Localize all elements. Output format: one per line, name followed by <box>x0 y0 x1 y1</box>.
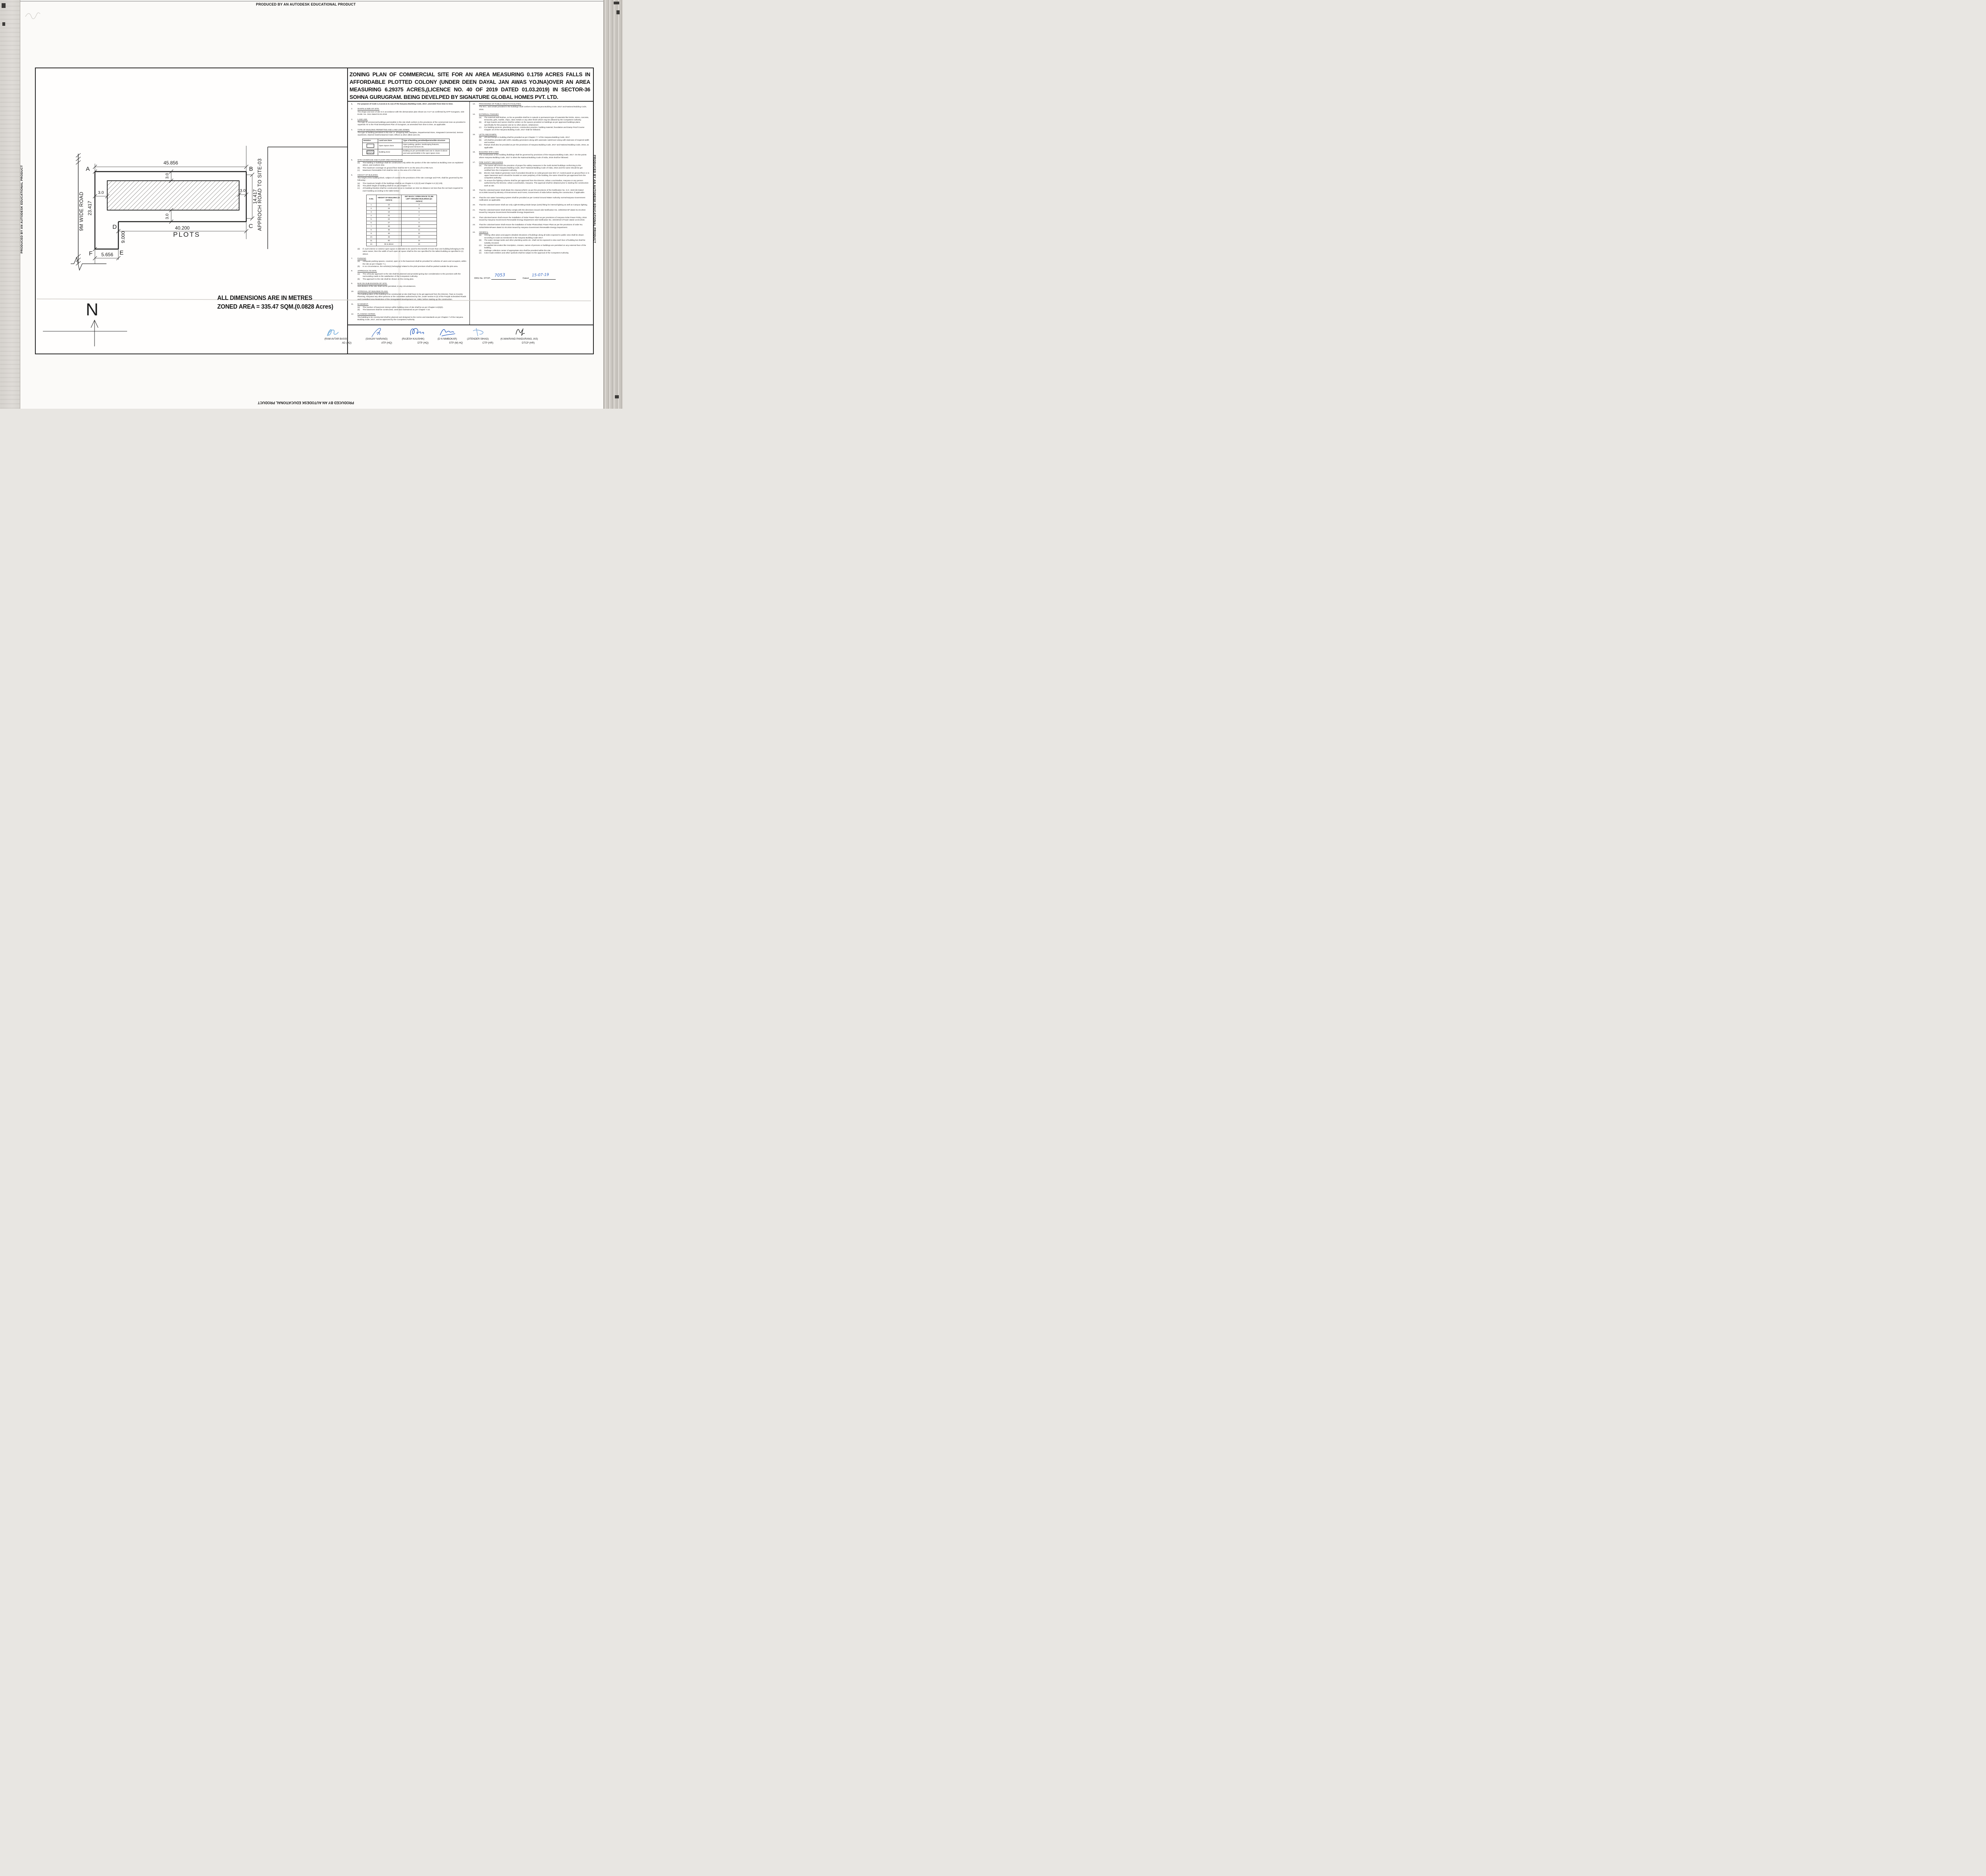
title-line: ZONING PLAN OF COMMERCIAL SITE FOR AN AR… <box>350 71 590 78</box>
table-cell: 14 <box>402 239 437 242</box>
subitem-text: No applied decoration like inscription, … <box>484 245 589 250</box>
note-content: HEIGHT OF BUILDING.The height of the bui… <box>357 174 467 256</box>
dimension-right: 14.417 <box>246 173 258 220</box>
table-cell: 27 <box>377 221 402 224</box>
subitem-key: (a) <box>357 162 363 167</box>
table-cell: 15 <box>377 207 402 211</box>
note-subitem: (b)The approach to the site shall be sho… <box>357 278 467 281</box>
height-table: S.No.HEIGHT OF BUILDING (in meters)SET B… <box>366 195 437 246</box>
title-line: MEASURING 6.29375 ACRES,(LICENCE NO. 40 … <box>350 86 590 93</box>
road-label-left: 9M WIDE ROAD <box>79 191 84 231</box>
note-content: BAR ON SUB-DIVISION OF SITE.Sub-division… <box>357 283 467 289</box>
note-content: That the coloniser/owner shall strictly … <box>479 209 589 215</box>
dimension-top-value: 45.856 <box>164 160 178 166</box>
signatory-name: (JITENDER SIHAG) <box>459 338 496 340</box>
table-cell: 24 <box>377 218 402 221</box>
note-item: 7.PARKING(a)Adequate parking spaces, cov… <box>351 258 467 269</box>
note-body: The type of building permitted in this s… <box>357 132 467 137</box>
dimension-de-value: 9.000 <box>120 231 126 243</box>
table-cell: 1. <box>367 203 377 207</box>
note-heading: HEIGHT OF BUILDING. <box>357 174 378 177</box>
drg-date-handwritten: 15-07-19 <box>531 272 549 277</box>
note-content: That the coloniser/owner shall use only … <box>479 204 589 207</box>
table-header: SET BACK / OPEN SPACE TO BE LEFT AROUND … <box>402 195 437 203</box>
produced-by-text-left: PRODUCED BY AN AUTODESK EDUCATIONAL PROD… <box>20 154 23 253</box>
plots-label: PLOTS <box>173 231 200 238</box>
table-cell: 8 <box>402 218 437 221</box>
dimensions-note: ALL DIMENSIONS ARE IN METRES ZONED AREA … <box>217 294 333 311</box>
subitem-text: The water storage tanks and other plumbi… <box>484 240 589 245</box>
subitem-key: (a) <box>357 261 363 266</box>
notation-swatch-cell <box>363 149 378 155</box>
note-subitem: (a)Among other plans and papers detailed… <box>479 234 589 240</box>
note-content: GENERAL(a)Among other plans and papers d… <box>479 232 589 255</box>
note-heading: SITE COVERAGE AND FLOOR AREA RATIO (FAR) <box>357 159 403 162</box>
table-row: Open Space ZoneOpen parking, garden, lan… <box>363 143 450 149</box>
note-item: 5.SITE COVERAGE AND FLOOR AREA RATIO (FA… <box>351 159 467 172</box>
subitem-key: (c) <box>479 144 484 149</box>
subitem-key: (b) <box>357 278 363 281</box>
note-body: That the coloniser/owner shall ensure th… <box>479 224 589 229</box>
drawing-sheet-frame: 45.856 A B C D E F 3.0 <box>35 68 594 354</box>
subitem-key: (e) <box>479 252 484 255</box>
zone-cell: Building Zone <box>378 149 402 155</box>
signature-block: (RAM AVTAR BASSI) AD (HQ) <box>317 327 355 344</box>
table-row: 2.155 <box>367 207 437 211</box>
signatory-designation: AD (HQ) <box>317 342 355 344</box>
note-number: 17. <box>473 162 479 187</box>
note-body: Sub-division of the site shall not be pe… <box>357 286 467 288</box>
table-row: 6.279 <box>367 221 437 224</box>
scan-speck <box>616 10 620 14</box>
note-number: 9. <box>351 283 357 289</box>
note-subitem: (d)If, such interior or exterior open sp… <box>357 248 467 256</box>
table-row: 11.5014 <box>367 239 437 242</box>
note-item: 10.APPROVAL OF BUILDING PLANS.The buildi… <box>351 291 467 302</box>
note-body: The height of the building block, subjec… <box>357 177 467 182</box>
corner-label-d: D <box>112 224 117 230</box>
note-item: 21.That the coloniser/owner shall strict… <box>473 209 589 215</box>
note-subitem: (c)All building block(s) shall be constr… <box>357 187 467 193</box>
notation-table: NotationLand use ZoneType of Building pe… <box>362 139 450 156</box>
table-cell: 13 <box>402 235 437 239</box>
note-body: That the rain water harvesting system sh… <box>479 197 589 202</box>
table-cell: 45 <box>377 235 402 239</box>
signatory-designation: CTP (HR) <box>459 342 496 344</box>
building-zone-hatch <box>107 181 239 210</box>
pencil-scribble <box>23 9 43 27</box>
signature-squiggle <box>503 327 535 338</box>
note-item: 14.EXTERNAL FINISHES(a)The external wall… <box>473 114 589 132</box>
note-item: 9.BAR ON SUB-DIVISION OF SITE.Sub-divisi… <box>351 283 467 289</box>
note-number: 22. <box>473 217 479 222</box>
note-number: 3. <box>351 119 357 127</box>
note-subitem: (b)Electric Sub Station/ generator room … <box>479 172 589 180</box>
scan-speck <box>2 22 5 26</box>
setback-bottom-value: 3.0 <box>165 214 170 220</box>
note-heading: TYPE OF BUILDING PERMITTED AND LAND USE … <box>357 129 410 131</box>
scan-edge-line <box>20 1 604 2</box>
note-content: BUILDING BYE-LAWSThe construction of the… <box>479 151 589 160</box>
table-row: Building ZoneBuilding as per permissible… <box>363 149 450 155</box>
note-number: 10. <box>351 291 357 302</box>
table-row: 7.3010 <box>367 224 437 228</box>
table-cell: 11. <box>367 239 377 242</box>
subitem-text: The approach to the site shall be shown … <box>363 278 467 281</box>
signature-block: (SANJAY NARANG) ATP (HQ) <box>358 327 395 344</box>
notes-column-right: 13.PROVISIONS OF PUBLIC HEALTH FACILITIE… <box>473 103 589 257</box>
table-row: 1.103 <box>367 203 437 207</box>
note-heading: LIFTS AND RAMPS. <box>479 134 497 136</box>
note-item: 15.LIFTS AND RAMPS.(a)Lift and Ramps in … <box>473 134 589 149</box>
subitem-key: (a) <box>479 117 484 122</box>
note-subitem: (e)Color trade emblem and other symbols … <box>479 252 589 255</box>
table-header: S.No. <box>367 195 377 203</box>
table-cell: 7. <box>367 224 377 228</box>
subitem-key: (b) <box>357 266 363 268</box>
scan-speck <box>614 2 619 4</box>
signature-squiggle <box>462 327 494 338</box>
note-body: The type of commercial buildings permiss… <box>357 122 467 127</box>
subitem-text: Color trade emblem and other symbols sha… <box>484 252 589 255</box>
signature-squiggle <box>431 327 463 338</box>
note-body: The building to be constructed shall be … <box>357 317 467 322</box>
table-cell: 11 <box>402 228 437 232</box>
subitem-text: Lift shall be provided with 100% standby… <box>484 139 589 145</box>
signature-squiggle <box>361 327 392 338</box>
panel-border-line <box>347 68 348 354</box>
table-cell: 9. <box>367 232 377 235</box>
note-subitem: (a)The external wall finishes, so far as… <box>479 117 589 122</box>
table-cell: 55 & above <box>377 242 402 246</box>
table-cell: 12. <box>367 242 377 246</box>
notation-swatch-cell <box>363 143 378 149</box>
drg-dated-label: Dated <box>523 277 529 280</box>
note-item: 13.PROVISIONS OF PUBLIC HEALTH FACILITIE… <box>473 103 589 112</box>
note-body: The building plans of the building to be… <box>357 294 467 301</box>
note-subitem: (a)The owner will ensure the provision o… <box>479 165 589 172</box>
drg-number-handwritten: 7053 <box>495 272 505 278</box>
note-number: 6. <box>351 174 357 256</box>
subitem-key: (c) <box>479 127 484 132</box>
signatory-name: (K.MAKRAND PANDURANG, IAS) <box>500 338 538 340</box>
signatory-name: (RAJESH KAUSHIK) <box>394 338 432 340</box>
table-cell: 6 <box>402 211 437 214</box>
note-content: That the rain water harvesting system sh… <box>479 197 589 203</box>
drg-label: DRG No. DTCP- <box>474 277 491 280</box>
drg-date-blank: 15-07-19 <box>529 276 556 280</box>
signature-block: (RAJESH KAUSHIK) DTP (HQ) <box>394 327 432 344</box>
table-cell: 3 <box>402 203 437 207</box>
signature-block: (K.MAKRAND PANDURANG, IAS) DTCP (HR) <box>500 327 538 344</box>
table-cell: 16 <box>402 242 437 246</box>
table-cell: 6. <box>367 221 377 224</box>
signatory-designation: DTP (HQ) <box>394 342 432 344</box>
note-item: 16.BUILDING BYE-LAWSThe construction of … <box>473 151 589 160</box>
note-content: APPROACH TO SITE.(a)The vehicular approa… <box>357 270 467 281</box>
subitem-text: The basement shall be constructed, used … <box>363 309 467 311</box>
table-header: Land use Zone <box>378 139 402 143</box>
table-cell: 40 <box>377 232 402 235</box>
note-subitem: (b)All sign boards and names shall be wr… <box>479 122 589 127</box>
note-number: 15. <box>473 134 479 149</box>
subitem-key: (c) <box>479 180 484 187</box>
note-subitem: (c)No applied decoration like inscriptio… <box>479 245 589 250</box>
produced-by-text-top: PRODUCED BY AN AUTODESK EDUCATIONAL PROD… <box>238 2 373 6</box>
note-item: 23.That the coloniser/owner shall ensure… <box>473 224 589 230</box>
note-content: That the coloniser/owner shall obtain th… <box>479 189 589 195</box>
table-row: 12.55 & above16 <box>367 242 437 246</box>
note-number: 16. <box>473 151 479 160</box>
table-header: HEIGHT OF BUILDING (in meters) <box>377 195 402 203</box>
note-number: 1. <box>351 103 357 106</box>
note-body: That the coloniser/owner shall obtain th… <box>479 189 589 195</box>
note-content: PARKING(a)Adequate parking spaces, cover… <box>357 258 467 269</box>
subitem-text: The building or buildings shall be const… <box>363 162 467 167</box>
note-number: 21. <box>473 209 479 215</box>
note-number: 11. <box>351 303 357 311</box>
note-item: 4.TYPE OF BUILDING PERMITTED AND LAND US… <box>351 129 467 157</box>
table-header: Type of Building permitted/permissible s… <box>402 139 450 143</box>
note-item: 8.APPROACH TO SITE.(a)The vehicular appr… <box>351 270 467 281</box>
note-heading: BUILDING BYE-LAWS <box>479 151 499 154</box>
setback-left-value: 3.0 <box>98 190 104 195</box>
subitem-text: Among other plans and papers detailed el… <box>484 234 589 240</box>
subitem-text: In no circumstance, the vehicle(s) belon… <box>363 266 467 268</box>
table-cell: 2. <box>367 207 377 211</box>
signatory-designation: DTCP (HR) <box>500 342 538 344</box>
subitem-text: For building services, plumbing services… <box>484 127 589 132</box>
table-cell: 4. <box>367 214 377 218</box>
note-content: SITE COVERAGE AND FLOOR AREA RATIO (FAR)… <box>357 159 467 172</box>
note-subitem: (c)Ramps shall also be provided as per t… <box>479 144 589 149</box>
note-subitem: (c)For building services, plumbing servi… <box>479 127 589 132</box>
note-item: 17.FIRE SAFETY MEASURES(a)The owner will… <box>473 162 589 187</box>
note-heading: BAR ON SUB-DIVISION OF SITE. <box>357 283 387 285</box>
subitem-key: (a) <box>479 234 484 240</box>
table-row: 9.4012 <box>367 232 437 235</box>
subitem-key: (b) <box>357 309 363 311</box>
table-cell: 5. <box>367 218 377 221</box>
table-row: 8.3511 <box>367 228 437 232</box>
note-content: SHAPE & SIZE OF SITE.The shape and size … <box>357 108 467 116</box>
subitem-key: (b) <box>479 240 484 245</box>
note-body: The shape and size of site is in accorda… <box>357 111 467 116</box>
dimensions-note-line2: ZONED AREA = 335.47 SQM.(0.0828 Acres) <box>217 303 333 311</box>
subitem-key: (d) <box>357 248 363 256</box>
corner-label-c: C <box>249 223 253 230</box>
dimension-fe: 5.656 <box>93 249 120 260</box>
subitem-text: The vehicular approach to the site shall… <box>363 273 467 278</box>
note-subitem: (b)The basement shall be constructed, us… <box>357 309 467 311</box>
note-content: EXTERNAL FINISHES(a)The external wall fi… <box>479 114 589 132</box>
note-body: That coloniser/owner shall ensure the in… <box>479 217 589 222</box>
signature-squiggle <box>397 327 429 338</box>
note-content: FIRE SAFETY MEASURES(a)The owner will en… <box>479 162 589 187</box>
note-heading: APPROACH TO SITE. <box>357 270 377 272</box>
note-number: 24. <box>473 232 479 255</box>
note-number: 20. <box>473 204 479 207</box>
subitem-text: Maximum Permissible FAR shall be 150 on … <box>363 170 467 172</box>
zone-cell: Open Space Zone <box>378 143 402 149</box>
note-body: That the coloniser/owner shall use only … <box>479 204 589 207</box>
note-heading: GENERAL <box>479 232 488 234</box>
note-item: 1.For purpose of Code 1.2 (xcvi) & 6.1 (… <box>351 103 467 106</box>
scanner-artifact-strip-right <box>603 0 623 409</box>
note-body: For purpose of Code 1.2 (xcvi) & 6.1 (1)… <box>357 103 467 106</box>
dimensions-note-line1: ALL DIMENSIONS ARE IN METRES <box>217 294 333 303</box>
note-number: 2. <box>351 108 357 116</box>
note-number: 4. <box>351 129 357 157</box>
corner-label-e: E <box>120 249 124 256</box>
note-subitem: (b)The water storage tanks and other plu… <box>479 240 589 245</box>
table-cell: 10 <box>402 224 437 228</box>
note-number: 18. <box>473 189 479 195</box>
signature-divider-line <box>347 325 593 325</box>
signature-squiggle <box>320 327 352 338</box>
table-cell: 12 <box>402 232 437 235</box>
north-label: N <box>86 300 99 319</box>
column-divider-line <box>469 101 470 325</box>
subitem-text: To ensure fire fighting scheme shall be … <box>484 180 589 187</box>
open-swatch <box>367 144 374 148</box>
dimension-left-value: 23.417 <box>87 201 93 215</box>
note-body: The construction of the building /buildi… <box>479 154 589 159</box>
note-number: 12. <box>351 313 357 322</box>
table-cell: 30 <box>377 224 402 228</box>
subitem-text: All building block(s) shall be construct… <box>363 187 467 193</box>
note-item: 24.GENERAL(a)Among other plans and paper… <box>473 232 589 255</box>
note-content: LIFTS AND RAMPS.(a)Lift and Ramps in bui… <box>479 134 589 149</box>
corner-label-a: A <box>86 166 90 172</box>
table-cell: 21 <box>377 214 402 218</box>
note-body: The W.C. and urinals provided in the bui… <box>479 106 589 111</box>
note-subitem: (a)The vehicular approach to the site sh… <box>357 273 467 278</box>
title-line: SOHNA GURUGRAM. BEING DEVELPED BY SIGNAT… <box>350 93 590 101</box>
note-item: 20.That the coloniser/owner shall use on… <box>473 204 589 207</box>
title-block: ZONING PLAN OF COMMERCIAL SITE FOR AN AR… <box>350 71 590 101</box>
note-item: 3.LAND USE.The type of commercial buildi… <box>351 119 467 127</box>
corner-label-b: B <box>249 166 253 172</box>
scanned-zoning-plan-sheet: PRODUCED BY AN AUTODESK EDUCATIONAL PROD… <box>0 0 623 409</box>
scan-speck <box>615 395 619 398</box>
dimension-fe-value: 5.656 <box>101 252 113 257</box>
note-heading: FIRE SAFETY MEASURES <box>479 162 503 164</box>
note-item: 12.PLANNING NORMS.The building to be con… <box>351 313 467 322</box>
subitem-key: (c) <box>479 245 484 250</box>
road-break-symbol <box>71 257 106 270</box>
subitem-text: Adequate parking spaces, covered, open o… <box>363 261 467 266</box>
table-row: 5.248 <box>367 218 437 221</box>
note-content: That the coloniser/owner shall ensure th… <box>479 224 589 230</box>
dimension-top: 45.856 <box>93 160 248 169</box>
scan-speck <box>2 3 6 8</box>
subitem-text: Ramps shall also be provided as per the … <box>484 144 589 149</box>
subitem-key: (a) <box>479 165 484 172</box>
setback-right-value: 3.0 <box>240 188 246 193</box>
note-content: PLANNING NORMS.The building to be constr… <box>357 313 467 322</box>
subitem-key: (b) <box>479 172 484 180</box>
note-content: LAND USE.The type of commercial building… <box>357 119 467 127</box>
table-row: 3.186 <box>367 211 437 214</box>
table-header: Notation <box>363 139 378 143</box>
note-item: 11.BASEMENT.(a)The number of basement st… <box>351 303 467 311</box>
subitem-key: (c) <box>357 170 363 172</box>
table-cell: 7 <box>402 214 437 218</box>
subitem-key: (b) <box>479 139 484 145</box>
note-subitem: (b)Lift shall be provided with 100% stan… <box>479 139 589 145</box>
note-number: 23. <box>473 224 479 230</box>
note-item: 6.HEIGHT OF BUILDING.The height of the b… <box>351 174 467 256</box>
note-content: APPROVAL OF BUILDING PLANS.The building … <box>357 291 467 302</box>
note-number: 7. <box>351 258 357 269</box>
note-subitem: (b)In no circumstance, the vehicle(s) be… <box>357 266 467 268</box>
setback-top-value: 3.0 <box>165 173 170 179</box>
note-heading: EXTERNAL FINISHES <box>479 114 499 116</box>
note-subitem: (a)Adequate parking spaces, covered, ope… <box>357 261 467 266</box>
note-body: That the coloniser/owner shall strictly … <box>479 209 589 214</box>
subitem-text: The owner will ensure the provision of p… <box>484 165 589 172</box>
note-number: 14. <box>473 114 479 132</box>
road-label-right: APPROCH ROAD TO SITE-03 <box>257 158 263 231</box>
note-number: 13. <box>473 103 479 112</box>
table-cell: 3. <box>367 211 377 214</box>
note-subitem: (c)Maximum Permissible FAR shall be 150 … <box>357 170 467 172</box>
table-cell: 18 <box>377 211 402 214</box>
subitem-key: (b) <box>479 122 484 127</box>
subitem-key: (a) <box>357 273 363 278</box>
note-number: 19. <box>473 197 479 203</box>
type-cell: Open parking, garden, landscaping featur… <box>402 143 450 149</box>
note-heading: SHAPE & SIZE OF SITE. <box>357 108 379 110</box>
table-cell: 8. <box>367 228 377 232</box>
note-heading: PROVISIONS OF PUBLIC HEALTH FACILITIES. <box>479 103 521 106</box>
signatory-name: (RAM AVTAR BASSI) <box>317 338 355 340</box>
produced-by-text-right: PRODUCED BY AN AUTODESK EDUCATIONAL PROD… <box>593 155 597 254</box>
note-heading: LAND USE. <box>357 119 368 121</box>
title-divider-line <box>347 101 593 102</box>
note-content: TYPE OF BUILDING PERMITTED AND LAND USE … <box>357 129 467 157</box>
dimension-bottom-value: 40.200 <box>175 225 190 231</box>
note-item: 19.That the rain water harvesting system… <box>473 197 589 203</box>
note-subitem: (c)To ensure fire fighting scheme shall … <box>479 180 589 187</box>
notes-column-left: 1.For purpose of Code 1.2 (xcvi) & 6.1 (… <box>351 103 467 324</box>
table-row: 10.4513 <box>367 235 437 239</box>
table-cell: 50 <box>377 239 402 242</box>
note-heading: PARKING <box>357 258 366 260</box>
note-number: 5. <box>351 159 357 172</box>
table-cell: 10 <box>377 203 402 207</box>
subitem-text: All sign boards and names shall be writt… <box>484 122 589 127</box>
hatched-swatch <box>367 150 374 154</box>
drg-row: DRG No. DTCP- 7053 Dated 15-07-19 <box>474 276 593 280</box>
note-content: PROVISIONS OF PUBLIC HEALTH FACILITIES.T… <box>479 103 589 112</box>
note-number: 8. <box>351 270 357 281</box>
north-arrow <box>43 320 127 346</box>
table-cell: 10. <box>367 235 377 239</box>
note-subitem: (a)The building or buildings shall be co… <box>357 162 467 167</box>
note-heading: BASEMENT. <box>357 303 369 306</box>
subitem-text: The external wall finishes, so far as po… <box>484 117 589 122</box>
table-row: 4.217 <box>367 214 437 218</box>
note-item: 22.That coloniser/owner shall ensure the… <box>473 217 589 222</box>
note-heading: APPROVAL OF BUILDING PLANS. <box>357 291 388 293</box>
drg-number-blank: 7053 <box>491 276 516 280</box>
signatory-name: (SANJAY NARANG) <box>358 338 395 340</box>
note-item: 18.That the coloniser/owner shall obtain… <box>473 189 589 195</box>
signatory-designation: ATP (HQ) <box>358 342 395 344</box>
table-cell: 5 <box>402 207 437 211</box>
